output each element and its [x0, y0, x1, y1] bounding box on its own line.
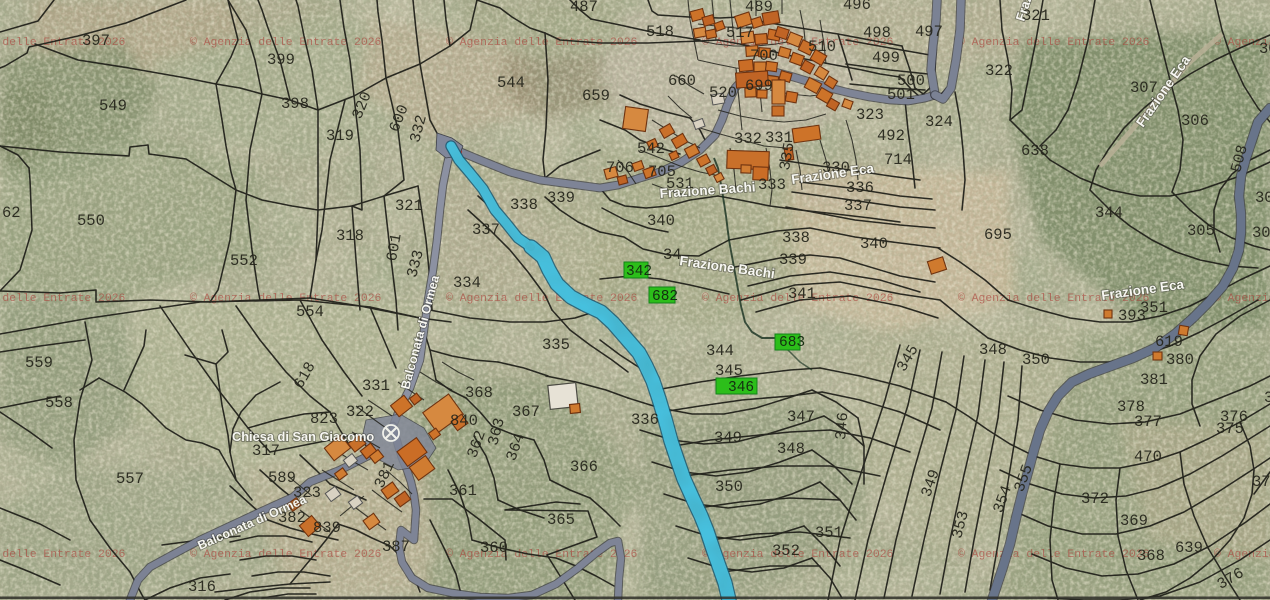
svg-text:381: 381	[1140, 371, 1168, 389]
svg-text:340: 340	[647, 212, 675, 230]
svg-text:© Agenzia delle Entrate 2026: © Agenzia delle Entrate 2026	[0, 549, 126, 561]
svg-text:372: 372	[1081, 490, 1109, 508]
svg-text:© Agenzia delle Entrate 2026: © Agenzia delle Entrate 2026	[190, 37, 382, 49]
svg-text:375: 375	[1216, 420, 1244, 438]
svg-text:331: 331	[362, 377, 390, 395]
svg-text:337: 337	[844, 197, 872, 215]
svg-text:695: 695	[984, 226, 1012, 244]
svg-text:322: 322	[985, 62, 1013, 80]
svg-text:361: 361	[449, 482, 477, 500]
svg-text:341: 341	[788, 285, 816, 303]
svg-text:839: 839	[313, 519, 341, 537]
svg-text:324: 324	[925, 113, 953, 131]
svg-text:487: 487	[570, 0, 598, 16]
svg-text:© Agenzia delle Entrate 2026: © Agenzia delle Entrate 2026	[958, 37, 1150, 49]
svg-text:319: 319	[326, 127, 354, 145]
svg-text:558: 558	[45, 394, 73, 412]
svg-text:366: 366	[570, 458, 598, 476]
svg-text:350: 350	[715, 478, 743, 496]
svg-text:549: 549	[99, 97, 127, 115]
svg-text:344: 344	[706, 342, 734, 360]
svg-text:714: 714	[884, 151, 912, 169]
svg-text:338: 338	[782, 229, 810, 247]
svg-text:554: 554	[296, 303, 324, 321]
svg-text:380: 380	[1166, 351, 1194, 369]
svg-text:317: 317	[252, 442, 280, 460]
svg-text:334: 334	[453, 274, 481, 292]
svg-text:700: 700	[750, 47, 778, 65]
svg-text:397: 397	[82, 32, 110, 50]
svg-text:557: 557	[116, 470, 144, 488]
svg-text:368: 368	[465, 384, 493, 402]
svg-text:517: 517	[726, 24, 754, 42]
svg-text:683: 683	[779, 335, 805, 351]
svg-text:346: 346	[832, 412, 852, 441]
svg-text:520: 520	[709, 84, 737, 102]
svg-text:300: 300	[1259, 40, 1270, 58]
svg-text:552: 552	[230, 252, 258, 270]
svg-text:© Agenzia delle Entrate 2026: © Agenzia delle Entrate 2026	[190, 549, 382, 561]
svg-text:660: 660	[668, 72, 696, 90]
svg-text:639: 639	[1175, 539, 1203, 557]
svg-text:706: 706	[606, 159, 634, 177]
svg-text:371: 371	[1252, 473, 1270, 491]
svg-text:335: 335	[542, 336, 570, 354]
svg-text:496: 496	[843, 0, 871, 14]
svg-text:322: 322	[346, 403, 374, 421]
svg-text:333: 333	[758, 176, 786, 194]
svg-text:377: 377	[1134, 413, 1162, 431]
svg-text:339: 339	[779, 251, 807, 269]
svg-text:344: 344	[1095, 204, 1123, 222]
svg-text:37: 37	[1264, 389, 1270, 407]
svg-text:497: 497	[915, 23, 943, 41]
svg-text:510: 510	[808, 38, 836, 56]
svg-text:303: 303	[1252, 224, 1270, 242]
svg-text:840: 840	[450, 412, 478, 430]
svg-text:619: 619	[1155, 333, 1183, 351]
svg-text:© Agenzia delle Entrate 2026: © Agenzia delle Entrate 2026	[0, 293, 126, 305]
svg-text:559: 559	[25, 354, 53, 372]
svg-text:470: 470	[1134, 448, 1162, 466]
svg-text:499: 499	[872, 49, 900, 67]
svg-text:352: 352	[772, 542, 800, 560]
svg-text:368: 368	[1137, 547, 1165, 565]
svg-text:349: 349	[714, 429, 742, 447]
svg-text:Chiesa di San Giacomo: Chiesa di San Giacomo	[232, 429, 374, 444]
svg-text:350: 350	[1022, 351, 1050, 369]
svg-text:347: 347	[787, 408, 815, 426]
svg-text:498: 498	[863, 24, 891, 42]
svg-text:345: 345	[715, 362, 743, 380]
svg-text:332: 332	[734, 130, 762, 148]
svg-text:338: 338	[510, 196, 538, 214]
svg-text:489: 489	[745, 0, 773, 16]
svg-text:© Agenzia delle Entrate 2026: © Agenzia delle Entrate 2026	[446, 549, 638, 561]
svg-text:501: 501	[887, 86, 915, 104]
svg-text:62: 62	[2, 204, 21, 222]
svg-text:348: 348	[979, 341, 1007, 359]
svg-text:398: 398	[281, 95, 309, 113]
svg-text:336: 336	[846, 179, 874, 197]
svg-text:339: 339	[547, 189, 575, 207]
svg-text:323: 323	[856, 106, 884, 124]
svg-text:336: 336	[631, 411, 659, 429]
svg-text:© Agenzia delle Entrate 2026: © Agenzia delle Entrate 2026	[1214, 293, 1270, 305]
svg-text:518: 518	[646, 23, 674, 41]
svg-text:638: 638	[1021, 142, 1049, 160]
svg-text:544: 544	[497, 74, 525, 92]
svg-text:542: 542	[637, 140, 665, 158]
svg-text:342: 342	[626, 264, 652, 280]
svg-text:321: 321	[395, 197, 423, 215]
svg-text:360: 360	[480, 539, 508, 557]
svg-text:318: 318	[336, 227, 364, 245]
svg-text:351: 351	[1140, 299, 1168, 317]
svg-text:699: 699	[745, 77, 773, 95]
svg-text:351: 351	[815, 524, 843, 542]
svg-text:316: 316	[188, 578, 216, 596]
svg-text:© Agenzia delle Entrate 2026: © Agenzia delle Entrate 2026	[446, 293, 638, 305]
svg-text:337: 337	[472, 221, 500, 239]
svg-text:346: 346	[728, 380, 754, 396]
svg-text:369: 369	[1120, 512, 1148, 530]
svg-text:550: 550	[77, 212, 105, 230]
svg-text:367: 367	[512, 403, 540, 421]
svg-text:399: 399	[267, 51, 295, 69]
svg-text:823: 823	[310, 410, 338, 428]
svg-text:659: 659	[582, 87, 610, 105]
svg-text:340: 340	[860, 235, 888, 253]
svg-text:589: 589	[268, 469, 296, 487]
svg-text:387: 387	[382, 538, 410, 556]
svg-text:682: 682	[652, 289, 678, 305]
svg-text:492: 492	[877, 127, 905, 145]
svg-text:348: 348	[777, 440, 805, 458]
svg-text:302: 302	[1255, 189, 1270, 207]
svg-text:305: 305	[1187, 222, 1215, 240]
svg-text:306: 306	[1181, 112, 1209, 130]
svg-text:365: 365	[547, 511, 575, 529]
